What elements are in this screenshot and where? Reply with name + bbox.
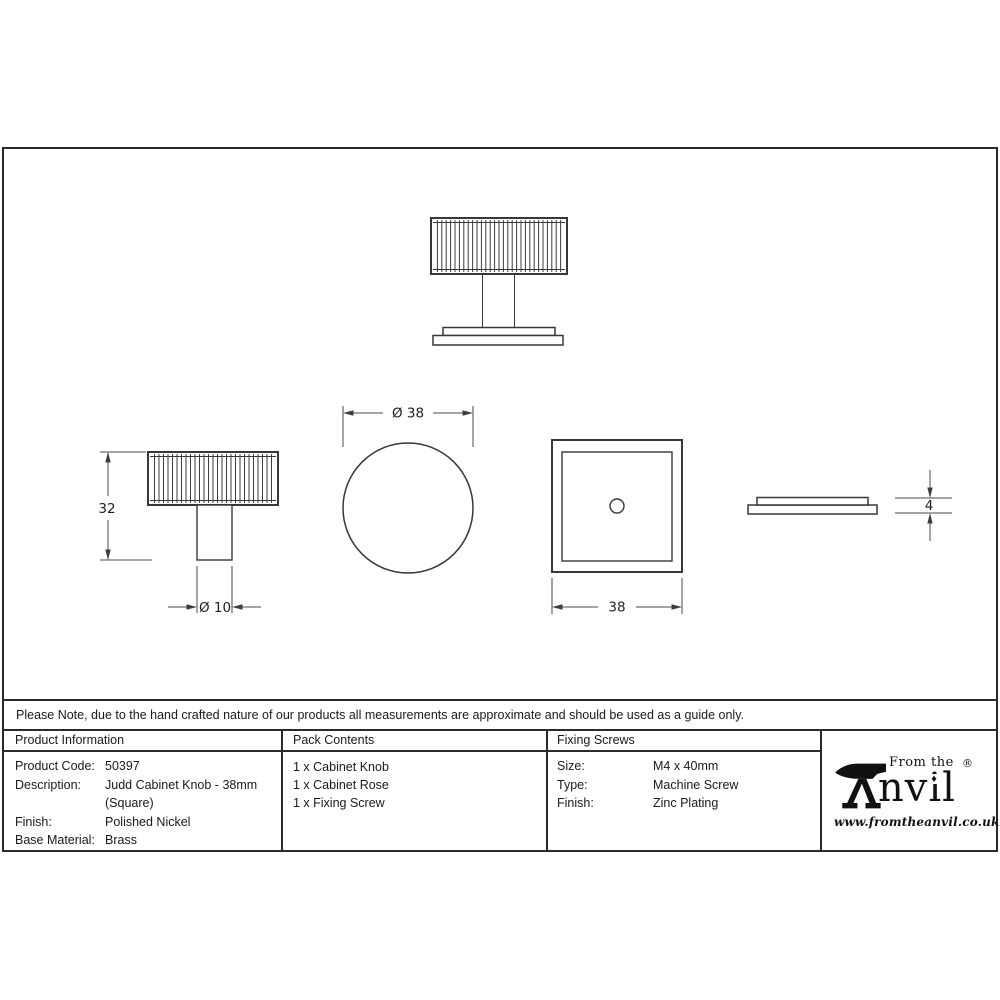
spec-label: Type: (557, 776, 653, 795)
spec-table: Product Information Product Code:50397De… (4, 731, 996, 850)
spec-row: Finish:Zinc Plating (557, 794, 820, 813)
spec-label: Base Material: (15, 831, 105, 850)
column-header-fixing-screws: Fixing Screws (548, 731, 820, 752)
spec-row: Base Material:Brass (15, 831, 281, 850)
pack-item: 1 x Cabinet Knob (293, 758, 546, 776)
spec-label: Size: (557, 757, 653, 776)
pack-contents-rows: 1 x Cabinet Knob1 x Cabinet Rose1 x Fixi… (283, 752, 546, 812)
brand-logo-cell: From the nvil ♦ ® www.fromtheanvil.co.uk (822, 731, 996, 850)
spec-value: Polished Nickel (105, 813, 267, 832)
logo-brand-text: nvil (878, 768, 956, 808)
pack-contents-column: Pack Contents 1 x Cabinet Knob1 x Cabine… (283, 731, 548, 850)
spec-row: Size:M4 x 40mm (557, 757, 820, 776)
spec-value: Zinc Plating (653, 794, 718, 813)
from-the-anvil-logo: From the nvil ♦ ® www.fromtheanvil.co.uk (834, 755, 984, 833)
spec-label: Finish: (15, 813, 105, 832)
sheet-frame: Please Note, due to the hand crafted nat… (2, 147, 998, 852)
product-information-column: Product Information Product Code:50397De… (4, 731, 283, 850)
spec-value: M4 x 40mm (653, 757, 718, 776)
pack-item: 1 x Cabinet Rose (293, 776, 546, 794)
fixing-screws-column: Fixing Screws Size:M4 x 40mmType:Machine… (548, 731, 822, 850)
spec-row: Product Code:50397 (15, 757, 281, 776)
spec-row: Finish:Polished Nickel (15, 813, 281, 832)
registered-trademark: ® (962, 757, 973, 770)
spec-label: Description: (15, 776, 105, 795)
spec-value: Judd Cabinet Knob - 38mm (Square) (105, 776, 267, 813)
fixing-screws-rows: Size:M4 x 40mmType:Machine ScrewFinish:Z… (548, 752, 820, 813)
spec-row: Description:Judd Cabinet Knob - 38mm (Sq… (15, 776, 281, 813)
spec-value: Brass (105, 831, 267, 850)
spec-value: Machine Screw (653, 776, 738, 795)
spec-sheet-page: 32 Ø 10 Ø 38 (0, 0, 1000, 1000)
spec-label: Finish: (557, 794, 653, 813)
column-header-pack-contents: Pack Contents (283, 731, 546, 752)
logo-website: www.fromtheanvil.co.uk (834, 815, 984, 829)
spec-row: Type:Machine Screw (557, 776, 820, 795)
column-header-product-information: Product Information (4, 731, 281, 752)
logo-diamond-dot: ♦ (928, 774, 940, 784)
measurement-note-row: Please Note, due to the hand crafted nat… (4, 699, 996, 731)
product-information-rows: Product Code:50397Description:Judd Cabin… (4, 752, 281, 850)
pack-item: 1 x Fixing Screw (293, 794, 546, 812)
spec-value: 50397 (105, 757, 267, 776)
spec-label: Product Code: (15, 757, 105, 776)
measurement-note: Please Note, due to the hand crafted nat… (16, 708, 744, 722)
